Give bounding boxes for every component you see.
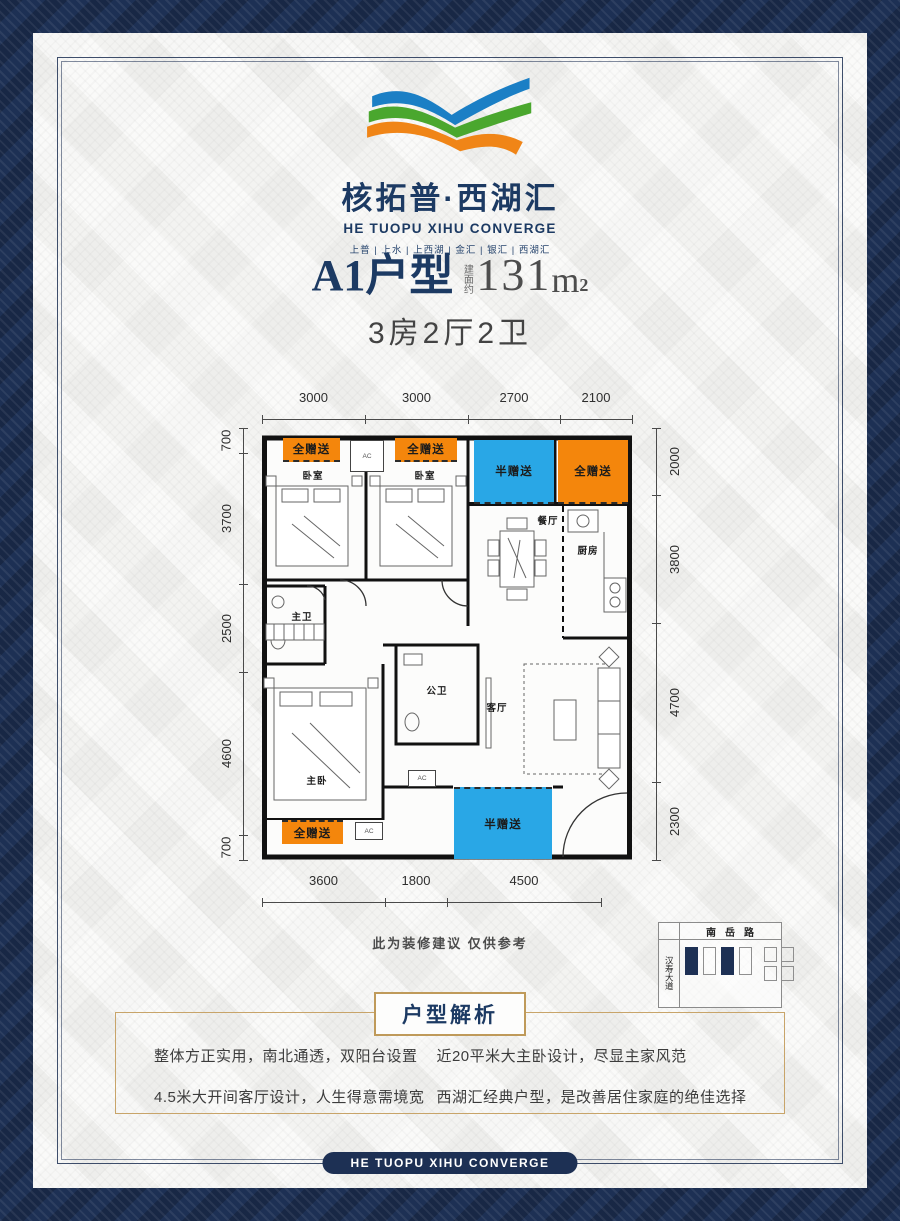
gift-zone-full-top-left: 全赠送 <box>283 438 340 462</box>
unit-name: A1户型 <box>312 254 454 298</box>
minimap-corner-cell <box>659 923 680 940</box>
map-block-filled <box>685 947 698 975</box>
analysis-header: 户型解析 <box>374 992 526 1036</box>
map-block-outline <box>764 966 777 981</box>
room-label-master-bath: 主卫 <box>291 609 312 623</box>
map-block-outline <box>703 947 716 975</box>
minimap-block-row <box>685 947 752 975</box>
dim-segment: 2500 <box>208 584 244 672</box>
dim-segment: 3800 <box>656 495 692 623</box>
ac-unit-box: AC <box>350 440 384 472</box>
minimap-blocks-area <box>679 939 781 1007</box>
gift-zone-full-top-mid: 全赠送 <box>395 438 457 462</box>
dim-segment: 2300 <box>656 782 692 860</box>
gift-zone-half-top: 半赠送 <box>474 440 554 504</box>
dimension-chain-top: 3000 3000 2700 2100 <box>262 390 632 420</box>
bullet-item: 近20平米大主卧设计，尽显主家风范 <box>436 1045 768 1066</box>
ac-unit-box: AC <box>355 822 383 840</box>
dim-segment: 3000 <box>262 390 365 420</box>
dim-segment: 2700 <box>468 390 560 420</box>
room-label-bedroom2: 卧室 <box>414 468 435 482</box>
room-label-dining: 餐厅 <box>537 513 558 527</box>
unit-headline: A1户型 建面约 131 m 2 <box>0 252 900 298</box>
dim-segment: 4500 <box>447 873 601 903</box>
area-unit: m <box>551 262 579 298</box>
area-superscript: 2 <box>579 275 588 296</box>
room-label-master-bedroom: 主卧 <box>306 773 327 787</box>
minimap-block-grid <box>764 947 794 981</box>
analysis-section: 户型解析 整体方正实用，南北通透，双阳台设置 近20平米大主卧设计，尽显主家风范… <box>115 1012 785 1114</box>
dim-segment: 2000 <box>656 428 692 495</box>
bullet-item: 4.5米大开间客厅设计，人生得意需境宽 <box>154 1086 436 1107</box>
brand-title: 核拓普·西湖汇 <box>0 173 900 218</box>
footer-brand-pill: HE TUOPU XIHU CONVERGE <box>322 1152 577 1174</box>
dimension-chain-bottom: 3600 1800 4500 <box>262 873 601 903</box>
gift-zone-full-bottom: 全赠送 <box>282 820 343 844</box>
map-block-outline <box>739 947 752 975</box>
bullet-item: 整体方正实用，南北通透，双阳台设置 <box>154 1045 436 1066</box>
road-label-hanshou: 汉寿大道 <box>659 939 680 1007</box>
dim-segment: 700 <box>208 428 244 453</box>
area-value: 131 <box>476 252 551 298</box>
road-label-nanyue: 南岳路 <box>679 923 781 940</box>
dim-segment: 700 <box>208 835 244 860</box>
dim-segment: 4700 <box>656 623 692 782</box>
dim-segment: 1800 <box>385 873 447 903</box>
gift-zone-half-bottom: 半赠送 <box>454 787 552 859</box>
brand-block: 核拓普·西湖汇 HE TUOPU XIHU CONVERGE 上普 | 上水 |… <box>0 76 900 256</box>
rooms-count-line: 3房2厅2卫 <box>0 308 900 352</box>
room-label-kitchen: 厨房 <box>577 543 598 557</box>
gift-zone-full-top-right: 全赠送 <box>558 440 628 504</box>
bullet-item: 西湖汇经典户型，是改善居住家庭的绝佳选择 <box>436 1086 768 1107</box>
floorplan: 全赠送 全赠送 半赠送 全赠送 全赠送 半赠送 AC AC AC 卧室 卧室 餐… <box>262 428 632 860</box>
area-prefix-label: 建面约 <box>461 264 472 294</box>
map-block-outline <box>781 947 794 962</box>
dim-segment: 3600 <box>262 873 385 903</box>
dim-segment: 2100 <box>560 390 632 420</box>
analysis-bullets: 整体方正实用，南北通透，双阳台设置 近20平米大主卧设计，尽显主家风范 4.5米… <box>154 1045 768 1107</box>
map-block-outline <box>781 966 794 981</box>
room-label-public-bath: 公卫 <box>426 683 447 697</box>
room-label-living: 客厅 <box>486 700 507 714</box>
dim-segment: 3000 <box>365 390 468 420</box>
dimension-chain-left: 700 3700 2500 4600 700 <box>208 428 244 860</box>
poster-page: 核拓普·西湖汇 HE TUOPU XIHU CONVERGE 上普 | 上水 |… <box>0 0 900 1221</box>
brand-swoosh-icon <box>365 76 535 164</box>
dim-segment: 3700 <box>208 453 244 584</box>
room-label-bedroom1: 卧室 <box>302 468 323 482</box>
map-block-outline <box>764 947 777 962</box>
dimension-chain-right: 2000 3800 4700 2300 <box>656 428 692 860</box>
ac-unit-box: AC <box>408 770 436 787</box>
dim-segment: 4600 <box>208 672 244 835</box>
brand-subtitle: HE TUOPU XIHU CONVERGE <box>0 221 900 236</box>
map-block-filled <box>721 947 734 975</box>
location-minimap: 南岳路 汉寿大道 <box>658 922 782 1008</box>
